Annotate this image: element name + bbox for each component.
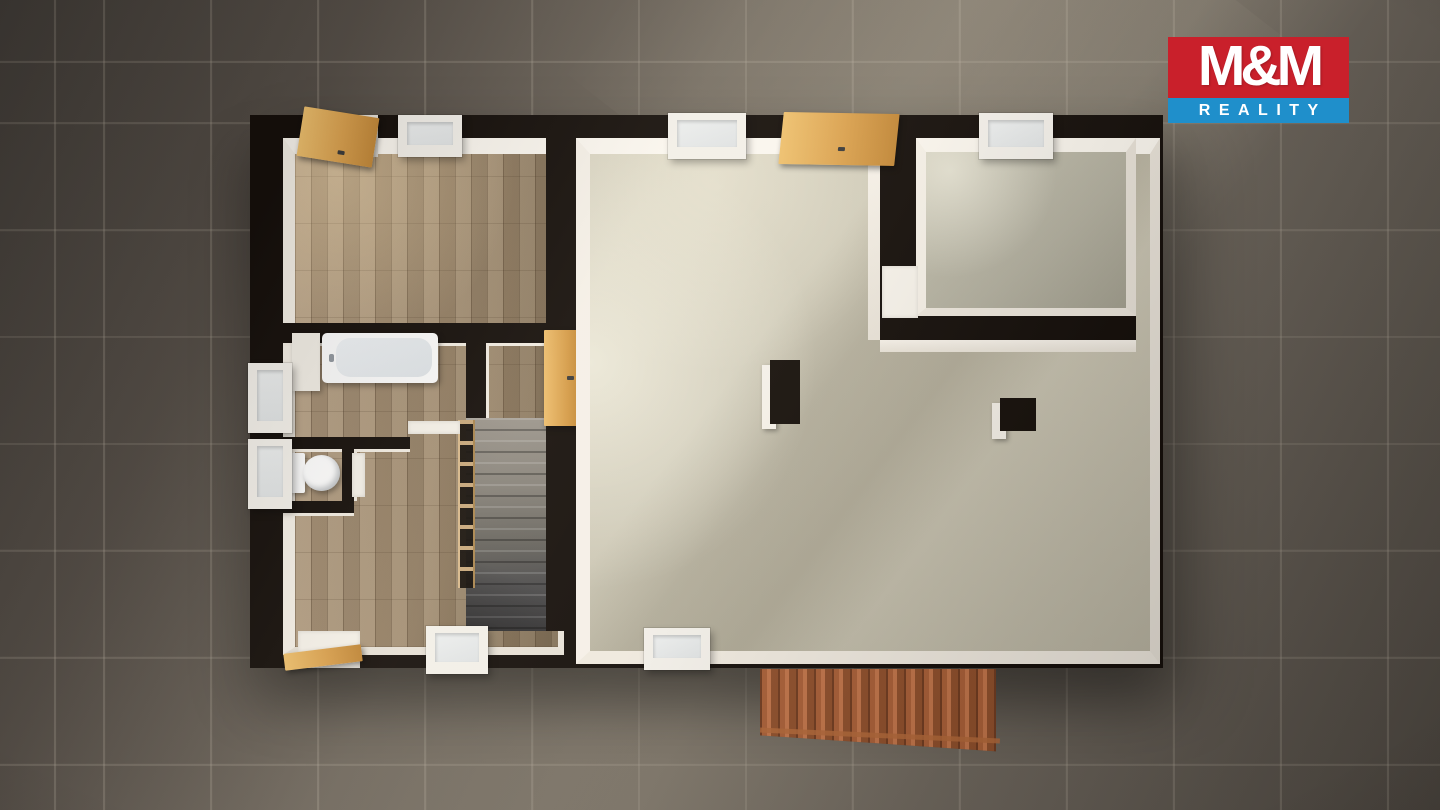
brand-logo: M&M REALITY	[1168, 37, 1349, 123]
door-handle	[567, 376, 574, 380]
room-top-right	[880, 138, 1136, 340]
interior-staircase	[466, 418, 546, 631]
staircase-railing	[458, 420, 475, 588]
building-floorplan	[250, 115, 1163, 668]
bathroom-door-open	[408, 421, 460, 434]
wall-bathroom-hall	[466, 343, 489, 423]
door-opening-top-right-room	[882, 266, 918, 318]
scene: M&M REALITY	[0, 0, 1440, 810]
door-handle	[838, 147, 845, 151]
bathroom-counter	[292, 333, 320, 391]
window-top-right-room	[979, 113, 1053, 159]
window-hall-bottom	[426, 626, 488, 674]
bathtub-faucet	[329, 354, 334, 362]
wood-door-hall-living	[544, 330, 578, 426]
window-living-top	[668, 113, 746, 159]
column-1	[770, 360, 800, 424]
wall-face-below-top-right-room	[880, 340, 1136, 352]
window-wc	[248, 439, 292, 509]
wood-double-door-living-open	[778, 112, 899, 166]
wall-face-living-side	[868, 138, 880, 340]
window-living-bottom	[644, 628, 710, 670]
window-top-left-room	[398, 115, 462, 157]
door-handle	[337, 150, 345, 155]
room-top-right-floor	[916, 138, 1136, 316]
logo-subtitle: REALITY	[1168, 98, 1349, 123]
logo-mark: M&M	[1168, 37, 1349, 98]
toilet-bowl	[303, 455, 340, 491]
window-bathroom	[248, 363, 292, 433]
wall-wc-bottom	[283, 501, 354, 516]
column-2	[1000, 398, 1036, 431]
bathtub	[322, 333, 438, 383]
wc-door-open	[352, 453, 365, 497]
logo-title: M&M	[1198, 38, 1319, 95]
